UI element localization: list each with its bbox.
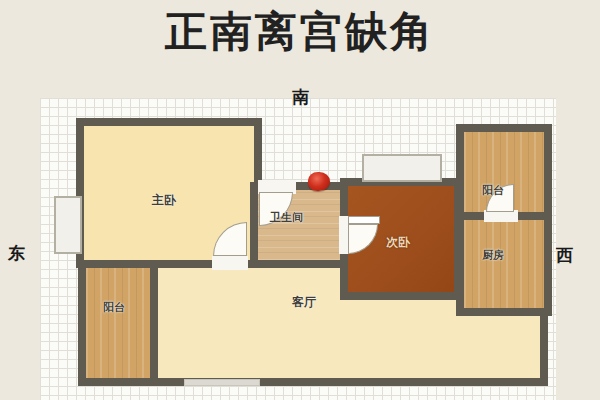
label-bathroom: 卫生间 xyxy=(270,210,303,225)
compass-west-label: 西 xyxy=(556,244,573,267)
room-balcony-bottom xyxy=(78,260,158,386)
master-bedroom-door-opening xyxy=(212,256,248,270)
label-master-bedroom: 主卧 xyxy=(152,192,176,209)
bay-window-second-bedroom xyxy=(362,154,442,182)
label-kitchen: 厨房 xyxy=(482,248,504,263)
floor-plan-page: 正南离宫缺角 主卧 卫生间 次卧 阳台 厨房 阳台 客厅 南 东 西 xyxy=(0,0,600,400)
compass-south-label: 南 xyxy=(292,86,309,109)
compass-east-label: 东 xyxy=(8,242,25,265)
label-living-room: 客厅 xyxy=(292,294,316,311)
second-bedroom-door-leaf xyxy=(348,216,380,224)
bay-window-left xyxy=(54,196,82,254)
room-kitchen xyxy=(456,212,552,316)
label-balcony-top: 阳台 xyxy=(482,183,504,198)
label-second-bedroom: 次卧 xyxy=(386,234,410,251)
window-bottom-wall xyxy=(184,379,260,386)
label-balcony-bottom: 阳台 xyxy=(103,300,125,315)
page-title: 正南离宫缺角 xyxy=(0,4,600,60)
